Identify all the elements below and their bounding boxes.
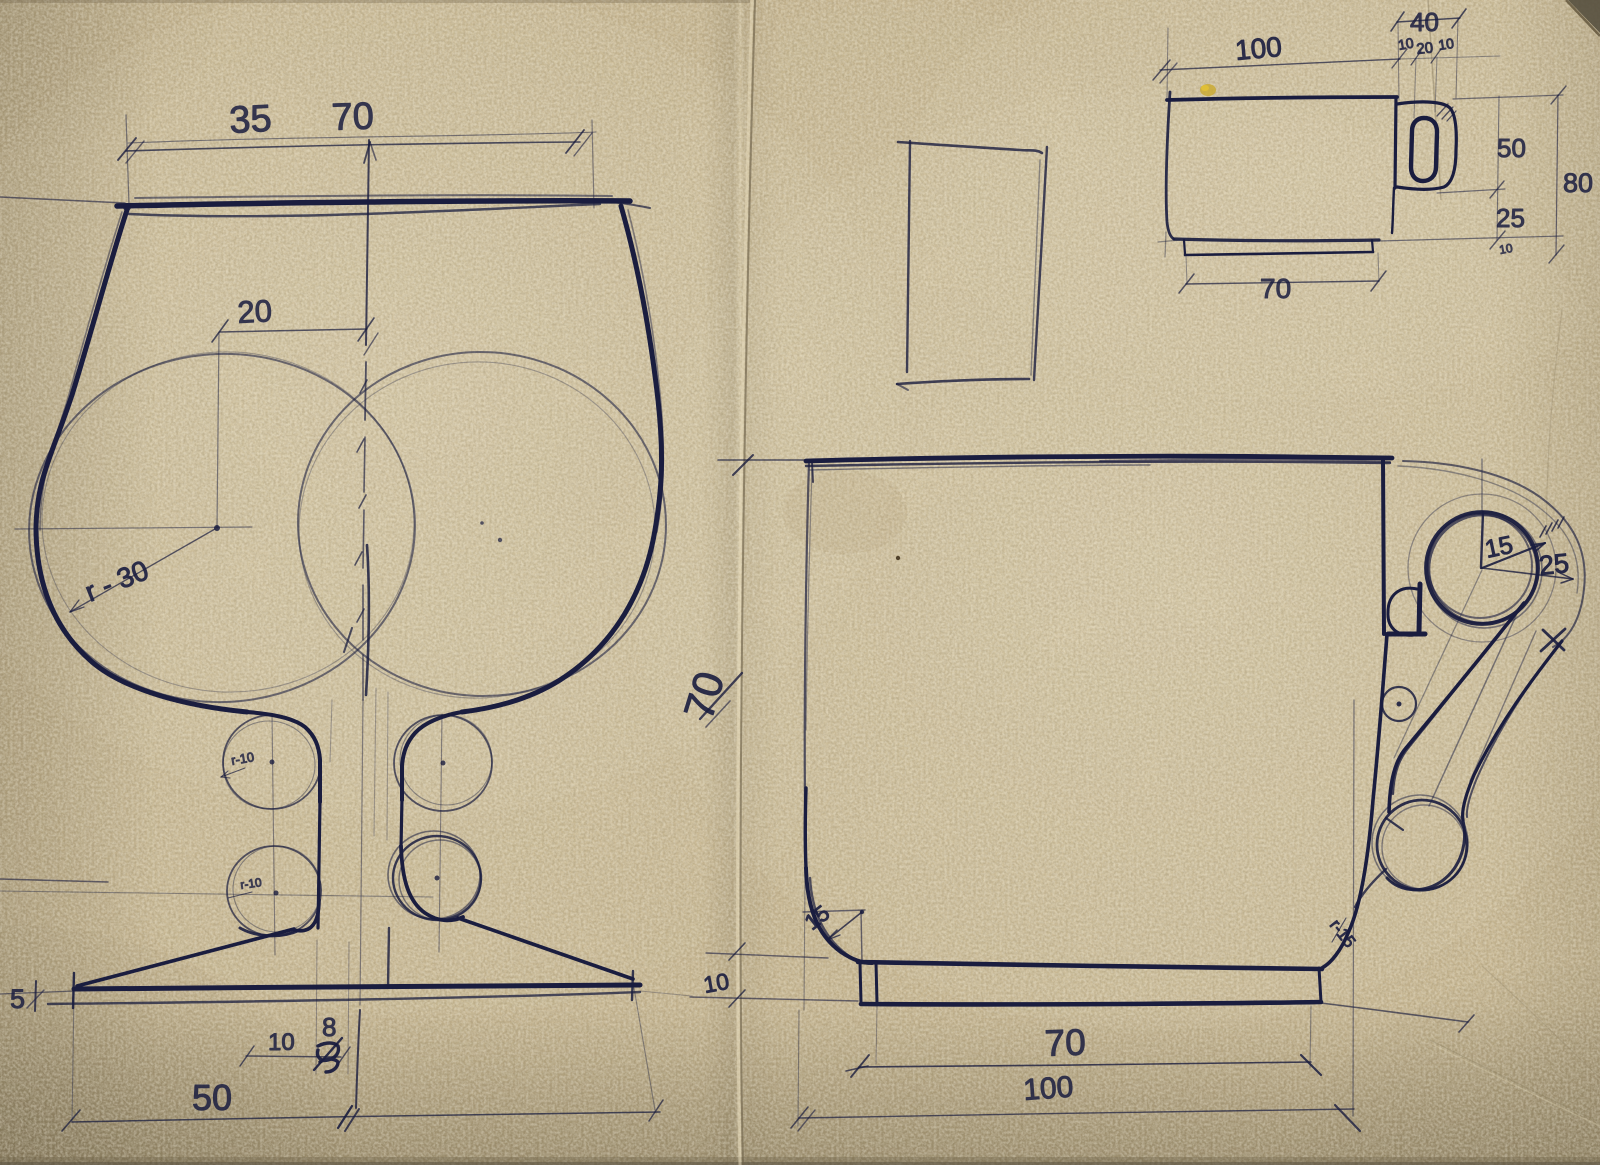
svg-text:10: 10 (1498, 241, 1514, 257)
svg-text:70: 70 (1260, 273, 1291, 304)
svg-text:100: 100 (1022, 1071, 1074, 1107)
svg-text:25: 25 (1496, 203, 1525, 233)
svg-text:50: 50 (1497, 133, 1526, 163)
svg-text:r-10: r-10 (239, 875, 262, 892)
svg-text:5: 5 (10, 984, 25, 1014)
svg-text:40: 40 (1410, 7, 1439, 37)
svg-text:10: 10 (268, 1029, 295, 1056)
svg-text:35: 35 (228, 98, 272, 142)
svg-text:10: 10 (701, 968, 731, 998)
svg-text:50: 50 (192, 1077, 232, 1118)
svg-text:20: 20 (237, 293, 273, 330)
svg-text:10: 10 (1397, 34, 1415, 52)
svg-text:100: 100 (1234, 31, 1283, 66)
svg-text:70: 70 (331, 96, 375, 139)
svg-text:80: 80 (1563, 168, 1593, 198)
svg-text:8: 8 (322, 1012, 336, 1042)
svg-text:70: 70 (1044, 1022, 1087, 1064)
svg-text:15: 15 (1482, 531, 1515, 564)
